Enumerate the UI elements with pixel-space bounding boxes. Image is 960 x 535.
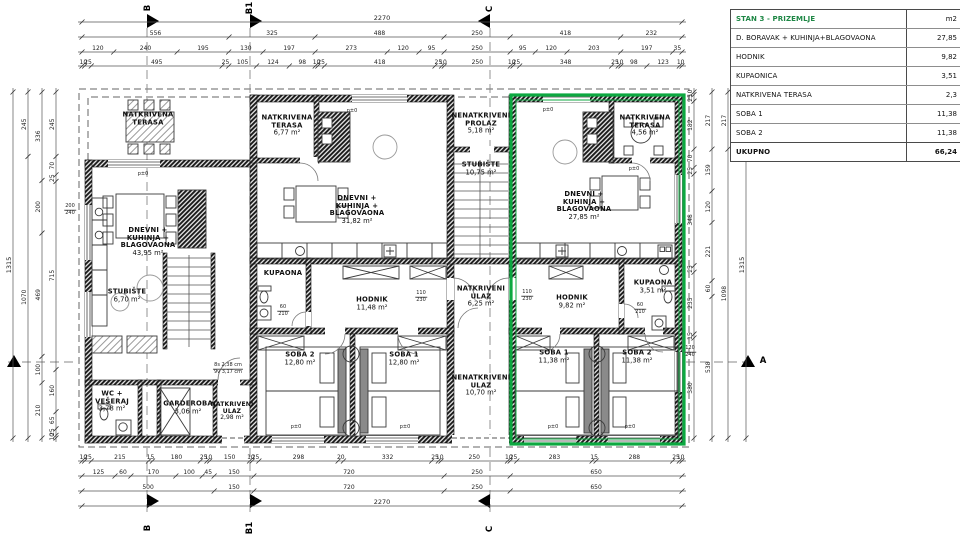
svg-text:273: 273 [345,45,357,52]
svg-text:1315: 1315 [5,257,13,274]
svg-text:150: 150 [224,454,236,461]
svg-text:10: 10 [677,59,685,66]
svg-text:170: 170 [148,469,160,476]
dining-set-left [103,194,176,244]
bed-soba2-mid [266,347,346,435]
svg-text:235: 235 [687,297,694,309]
svg-text:650: 650 [590,469,602,476]
table-total-row: UKUPNO 66,24 [731,142,960,161]
svg-text:25: 25 [513,59,521,66]
svg-text:25: 25 [84,454,92,461]
svg-text:245: 245 [21,118,28,130]
kitchen-block-right [583,112,613,162]
svg-text:325: 325 [266,30,278,37]
svg-text:288: 288 [629,454,641,461]
counter-mid [257,243,447,259]
svg-text:124: 124 [267,59,279,66]
svg-text:217: 217 [721,115,728,127]
svg-text:500: 500 [142,484,154,491]
svg-text:10: 10 [205,454,213,461]
svg-text:240: 240 [140,45,152,52]
svg-text:100: 100 [35,364,42,376]
table-row-value: 2,3 [906,86,960,104]
counter-left [92,198,107,326]
svg-text:1070: 1070 [21,289,28,304]
svg-text:250: 250 [471,484,483,491]
bed-soba1-mid [360,347,440,435]
svg-text:418: 418 [560,30,572,37]
stairs [167,160,508,347]
svg-text:25: 25 [49,174,56,182]
svg-text:2270: 2270 [374,14,391,22]
terrace-furniture-left [126,100,174,154]
svg-text:715: 715 [49,270,56,282]
svg-text:65: 65 [49,416,56,424]
svg-text:221: 221 [705,246,712,258]
table-row-label: D. BORAVAK + KUHINJA+BLAGOVAONA [731,34,906,42]
svg-text:283: 283 [549,454,561,461]
svg-text:197: 197 [283,45,295,52]
svg-text:95: 95 [428,45,436,52]
svg-text:150: 150 [228,484,240,491]
svg-text:160: 160 [49,385,56,397]
dining-set-mid [284,186,348,222]
svg-text:418: 418 [374,59,386,66]
kitchen-block-mid [318,112,350,162]
svg-text:250: 250 [472,59,484,66]
svg-text:197: 197 [641,45,653,52]
svg-text:120: 120 [705,201,712,213]
svg-text:380: 380 [687,382,694,394]
svg-text:217: 217 [705,115,712,127]
counter-right [516,243,675,259]
svg-text:298: 298 [293,454,305,461]
table-row: D. BORAVAK + KUHINJA+BLAGOVAONA27,85 [731,29,960,48]
svg-text:556: 556 [150,30,162,37]
svg-text:25: 25 [317,59,325,66]
table-row-label: SOBA 1 [731,110,906,118]
floor-plan-page: 2270556325488250418232120240195130197273… [0,0,960,535]
svg-text:105: 105 [237,59,249,66]
svg-text:336: 336 [35,130,42,142]
table-row-value: 9,82 [906,48,960,66]
svg-text:100: 100 [183,469,195,476]
svg-text:250: 250 [471,30,483,37]
table-row-value: 11,38 [906,124,960,142]
area-table: STAN 3 - PRIZEMLJE m2 D. BORAVAK + KUHIN… [730,9,960,162]
svg-text:10: 10 [439,59,447,66]
svg-text:488: 488 [374,30,386,37]
svg-text:2270: 2270 [374,498,391,506]
svg-text:215: 215 [114,454,126,461]
svg-text:182: 182 [687,119,694,131]
svg-text:245: 245 [49,118,56,130]
svg-text:332: 332 [382,454,394,461]
svg-text:180: 180 [171,454,183,461]
svg-text:25: 25 [222,59,230,66]
svg-text:10: 10 [436,454,444,461]
table-row-label: HODNIK [731,53,906,61]
table-body: D. BORAVAK + KUHINJA+BLAGOVAONA27,85HODN… [731,29,960,142]
table-unit-header: m2 [906,10,960,28]
svg-text:123: 123 [657,59,669,66]
svg-text:348: 348 [687,214,694,226]
table-row-label: NATKRIVENA TERASA [731,91,906,99]
svg-text:538: 538 [705,361,712,373]
table-row: KUPAONICA3,51 [731,67,960,86]
table-total-value: 66,24 [906,143,960,161]
sofa-left-unit [92,336,157,353]
table-header-row: STAN 3 - PRIZEMLJE m2 [731,10,960,29]
svg-text:25: 25 [687,265,694,273]
table-row-value: 3,51 [906,67,960,85]
svg-text:203: 203 [588,45,600,52]
table-row: NATKRIVENA TERASA2,3 [731,86,960,105]
svg-text:70: 70 [49,162,56,170]
terrace-furniture-right [624,118,663,155]
svg-text:25: 25 [84,59,92,66]
table-total-label: UKUPNO [731,148,906,156]
svg-text:25: 25 [687,167,694,175]
table-title: STAN 3 - PRIZEMLJE [731,15,906,23]
svg-text:250: 250 [471,45,483,52]
svg-text:60: 60 [705,285,712,293]
svg-text:250: 250 [469,454,481,461]
svg-text:720: 720 [343,484,355,491]
svg-text:60: 60 [119,469,127,476]
svg-text:25: 25 [510,454,518,461]
svg-text:200: 200 [35,201,42,213]
svg-text:159: 159 [705,164,712,176]
svg-text:20: 20 [337,454,345,461]
svg-text:25: 25 [687,94,694,102]
svg-text:348: 348 [560,59,572,66]
svg-text:25: 25 [252,454,260,461]
svg-text:720: 720 [343,469,355,476]
svg-text:98: 98 [298,59,306,66]
table-row-label: KUPAONICA [731,72,906,80]
svg-text:10: 10 [677,454,685,461]
bed-soba2-right [601,347,678,435]
svg-text:495: 495 [151,59,163,66]
svg-text:35: 35 [674,45,682,52]
svg-text:98: 98 [630,59,638,66]
table-row-value: 27,85 [906,29,960,47]
svg-text:120: 120 [545,45,557,52]
table-row-value: 11,38 [906,105,960,123]
table-row: HODNIK9,82 [731,48,960,67]
svg-text:10: 10 [616,59,624,66]
table-row: SOBA 211,38 [731,124,960,142]
svg-text:45: 45 [204,469,212,476]
dining-set-right [590,176,650,210]
kitchen-island-left [178,190,206,248]
furniture [92,100,678,436]
svg-text:1098: 1098 [721,286,728,301]
svg-text:150: 150 [228,469,240,476]
svg-text:650: 650 [590,484,602,491]
svg-text:130: 130 [240,45,252,52]
svg-text:125: 125 [93,469,105,476]
svg-text:469: 469 [35,289,42,301]
svg-text:120: 120 [92,45,104,52]
svg-text:95: 95 [519,45,527,52]
svg-text:210: 210 [35,404,42,416]
svg-text:70: 70 [687,154,694,162]
svg-text:250: 250 [471,469,483,476]
bed-soba1-right [515,347,592,435]
svg-text:1315: 1315 [738,257,746,274]
table-row-label: SOBA 2 [731,129,906,137]
svg-text:232: 232 [646,30,658,37]
svg-text:120: 120 [397,45,409,52]
table-row: SOBA 111,38 [731,105,960,124]
svg-text:195: 195 [197,45,209,52]
